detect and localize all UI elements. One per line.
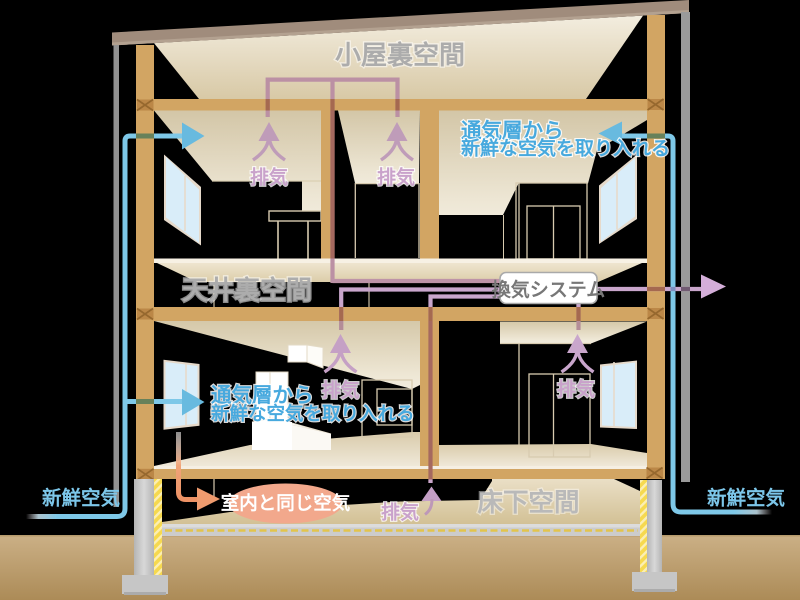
svg-text:新鮮空気: 新鮮空気: [707, 487, 786, 510]
svg-text:排気: 排気: [381, 501, 419, 524]
svg-text:新鮮な空気を取り入れる: 新鮮な空気を取り入れる: [211, 403, 415, 424]
svg-text:排気: 排気: [557, 378, 595, 401]
svg-text:小屋裏空間: 小屋裏空間: [335, 40, 465, 70]
svg-text:天井裏空間: 天井裏空間: [182, 275, 312, 305]
svg-text:排気: 排気: [377, 166, 415, 189]
svg-text:床下空間: 床下空間: [477, 488, 579, 517]
svg-text:換気システム: 換気システム: [492, 278, 605, 301]
svg-text:排気: 排気: [250, 166, 288, 189]
svg-text:室内と同じ空気: 室内と同じ空気: [221, 493, 351, 514]
svg-text:新鮮な空気を取り入れる: 新鮮な空気を取り入れる: [461, 137, 670, 160]
svg-text:新鮮空気: 新鮮空気: [42, 487, 121, 510]
svg-text:排気: 排気: [321, 379, 359, 402]
